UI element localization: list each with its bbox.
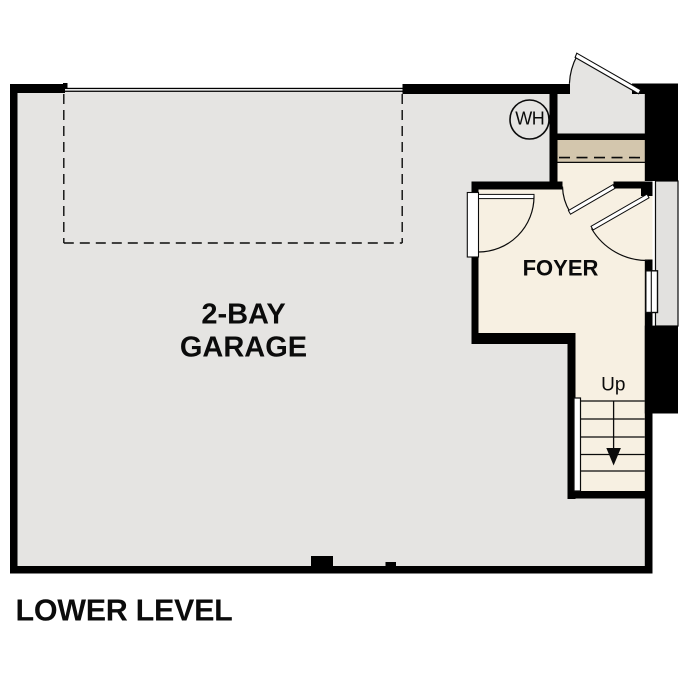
svg-text:FOYER: FOYER [523,255,599,280]
svg-text:LOWER LEVEL: LOWER LEVEL [16,594,233,628]
svg-text:2-BAY: 2-BAY [201,298,285,330]
svg-text:Up: Up [601,374,625,395]
svg-text:WH: WH [515,109,544,129]
svg-text:GARAGE: GARAGE [180,332,307,364]
